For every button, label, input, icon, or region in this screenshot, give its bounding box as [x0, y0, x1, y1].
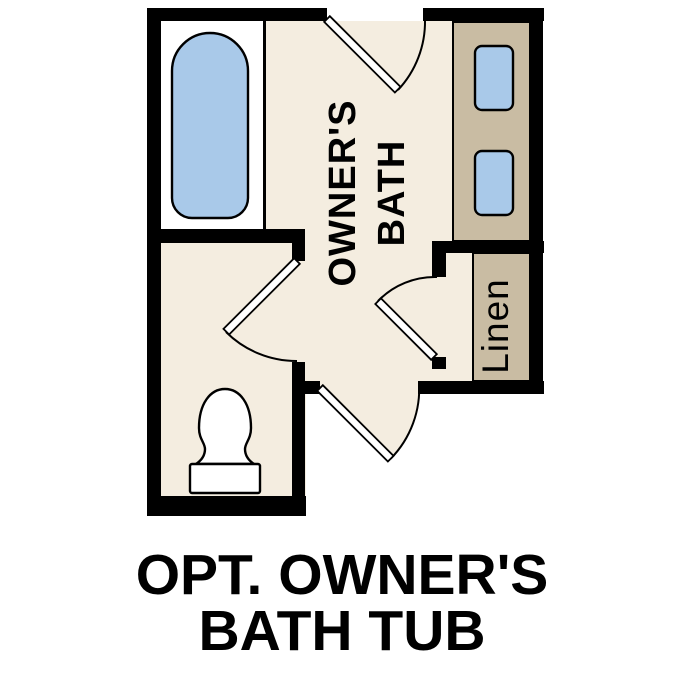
- wall-left: [147, 8, 161, 516]
- room-label-bath: BATH: [371, 140, 413, 247]
- wall-bottom-right: [418, 381, 544, 394]
- wall-top-left: [147, 8, 327, 21]
- wall-toilet-right-lower: [292, 362, 305, 496]
- toilet-bowl: [196, 389, 254, 464]
- wall-linen-left-stub: [432, 357, 446, 369]
- floor-plan: OWNER'S BATH Linen OPT. OWNER'S BATH TUB: [0, 0, 687, 687]
- sink-basin-top: [475, 46, 513, 110]
- wall-toilet-bottom: [147, 496, 306, 516]
- room-label-owners: OWNER'S: [322, 99, 364, 286]
- floor-plan-page: OWNER'S BATH Linen OPT. OWNER'S BATH TUB: [0, 0, 687, 687]
- sink-basin-bottom: [475, 151, 513, 215]
- wall-linen-left-upper: [432, 241, 446, 277]
- caption-line1: OPT. OWNER'S: [136, 543, 549, 607]
- wall-tub-toilet-divider: [147, 229, 305, 243]
- wall-top-right: [423, 8, 544, 21]
- entry-door-swing-area: [320, 381, 419, 459]
- bathtub: [172, 33, 248, 218]
- toilet-tank: [190, 464, 260, 493]
- caption-line2: BATH TUB: [198, 599, 485, 663]
- wall-tub-alcove-divider-line: [263, 21, 266, 229]
- wall-right: [530, 8, 543, 394]
- wall-vanity-linen-divider: [432, 241, 544, 253]
- linen-closet-label: Linen: [475, 278, 516, 374]
